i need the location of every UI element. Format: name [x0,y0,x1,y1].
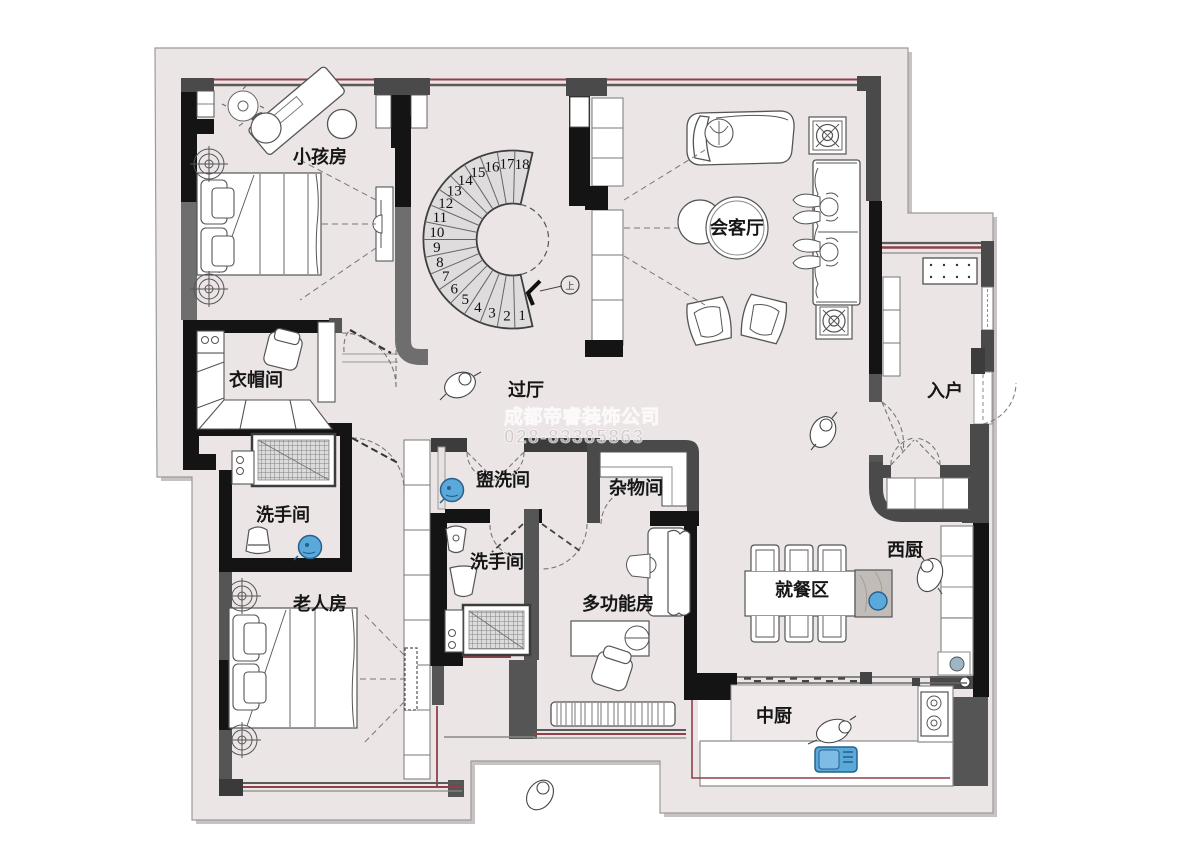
svg-text:18: 18 [515,157,530,173]
svg-text:10: 10 [429,225,444,241]
svg-text:17: 17 [500,157,516,173]
svg-text:过厅: 过厅 [508,379,544,400]
svg-text:15: 15 [470,165,485,181]
svg-text:中厨: 中厨 [756,705,792,726]
svg-text:衣帽间: 衣帽间 [229,369,283,390]
svg-text:9: 9 [433,240,441,256]
svg-text:盥洗间: 盥洗间 [476,469,530,490]
svg-text:8: 8 [436,255,444,271]
svg-text:杂物间: 杂物间 [609,477,663,498]
svg-text:4: 4 [474,300,482,316]
svg-text:028-83385863: 028-83385863 [504,427,645,448]
svg-text:11: 11 [433,210,447,226]
svg-text:会客厅: 会客厅 [710,217,764,238]
svg-text:洗手间: 洗手间 [256,504,310,525]
svg-text:1: 1 [518,308,526,324]
svg-text:16: 16 [485,159,501,175]
svg-text:洗手间: 洗手间 [470,551,524,572]
svg-text:西厨: 西厨 [887,540,923,560]
svg-text:成都帝睿装饰公司: 成都帝睿装饰公司 [504,405,660,428]
svg-text:5: 5 [461,292,469,308]
svg-text:就餐区: 就餐区 [775,579,829,600]
svg-text:3: 3 [488,306,496,322]
svg-text:多功能房: 多功能房 [582,593,654,614]
svg-text:小孩房: 小孩房 [293,146,347,167]
svg-text:入户: 入户 [927,380,963,401]
svg-text:上: 上 [565,281,574,291]
svg-text:7: 7 [442,269,450,285]
svg-text:6: 6 [451,281,459,297]
svg-text:老人房: 老人房 [293,593,347,614]
svg-text:2: 2 [503,308,511,324]
